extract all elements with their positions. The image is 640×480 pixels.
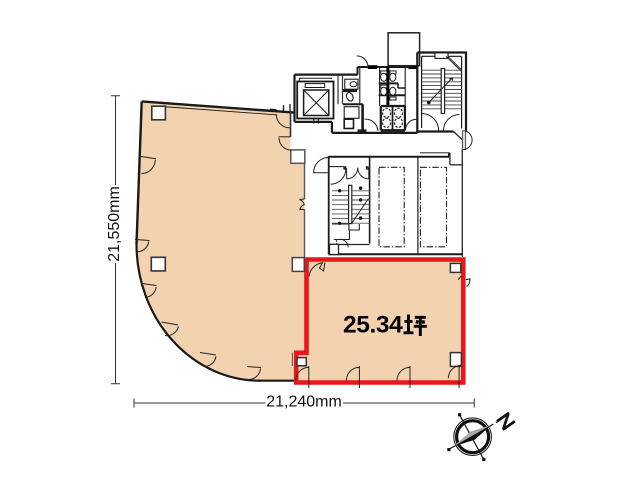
svg-text:25.34: 25.34: [343, 312, 403, 339]
svg-text:21,550mm: 21,550mm: [106, 186, 123, 262]
svg-text:21,240mm: 21,240mm: [266, 394, 342, 411]
